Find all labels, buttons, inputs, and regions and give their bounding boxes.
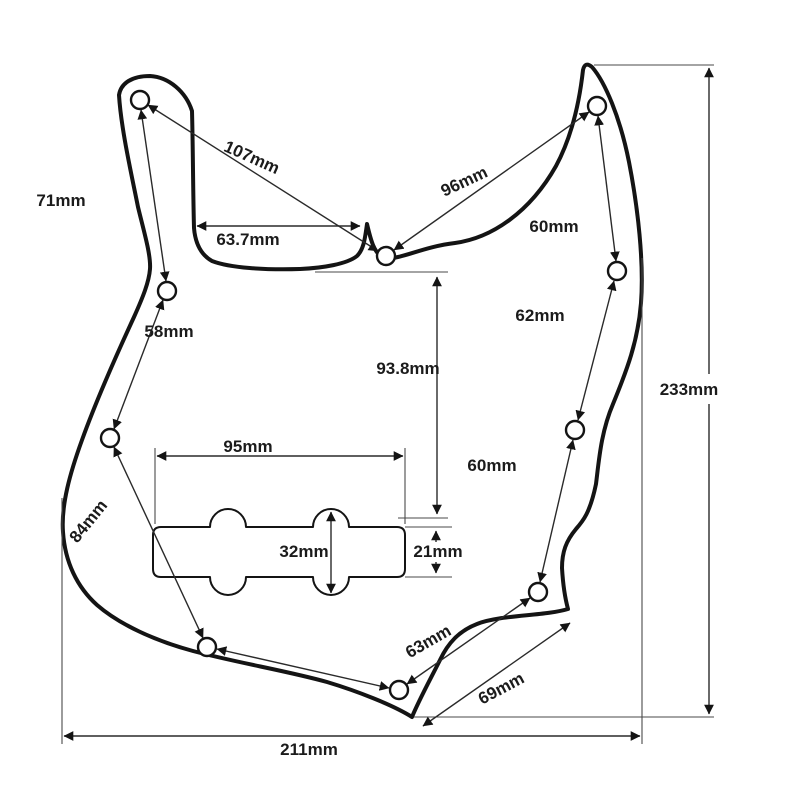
label-21mm: 21mm — [413, 542, 462, 561]
pickguard-outline — [63, 65, 642, 717]
dimension-labels: 71mm 107mm 63.7mm 96mm 60mm 58mm 62mm 93… — [36, 137, 718, 759]
label-107mm: 107mm — [221, 137, 282, 178]
screw-hole-top-left — [131, 91, 149, 109]
screw-hole-right-upper — [608, 262, 626, 280]
pickguard-dimension-diagram: 71mm 107mm 63.7mm 96mm 60mm 58mm 62mm 93… — [0, 0, 800, 800]
line-bottom-left-span — [217, 649, 389, 688]
label-93-8mm: 93.8mm — [376, 359, 439, 378]
label-60mm-upper-right: 60mm — [529, 217, 578, 236]
line-60mm-upper-right — [598, 116, 616, 261]
label-71mm: 71mm — [36, 191, 85, 210]
line-84mm — [114, 447, 203, 638]
line-60mm-lower-right — [540, 440, 573, 582]
screw-hole-right-lower — [566, 421, 584, 439]
label-63-7mm: 63.7mm — [216, 230, 279, 249]
label-62mm: 62mm — [515, 306, 564, 325]
label-60mm-lower-right: 60mm — [467, 456, 516, 475]
screw-hole-left-lower — [101, 429, 119, 447]
label-32mm: 32mm — [279, 542, 328, 561]
screw-hole-bottom-center — [390, 681, 408, 699]
label-211mm: 211mm — [280, 740, 338, 759]
line-71mm — [141, 110, 166, 281]
label-95mm: 95mm — [223, 437, 272, 456]
label-84mm: 84mm — [66, 496, 112, 546]
label-58mm: 58mm — [144, 322, 193, 341]
screw-hole-neck-notch — [377, 247, 395, 265]
screw-hole-bottom-left — [198, 638, 216, 656]
screw-hole-bottom-right — [529, 583, 547, 601]
screw-hole-left-upper — [158, 282, 176, 300]
diagram-canvas: 71mm 107mm 63.7mm 96mm 60mm 58mm 62mm 93… — [0, 0, 800, 800]
line-58mm — [114, 300, 163, 429]
label-233mm: 233mm — [660, 380, 719, 399]
label-96mm: 96mm — [438, 162, 491, 200]
label-69mm: 69mm — [475, 669, 527, 709]
line-62mm — [578, 281, 614, 420]
screw-hole-top-right — [588, 97, 606, 115]
